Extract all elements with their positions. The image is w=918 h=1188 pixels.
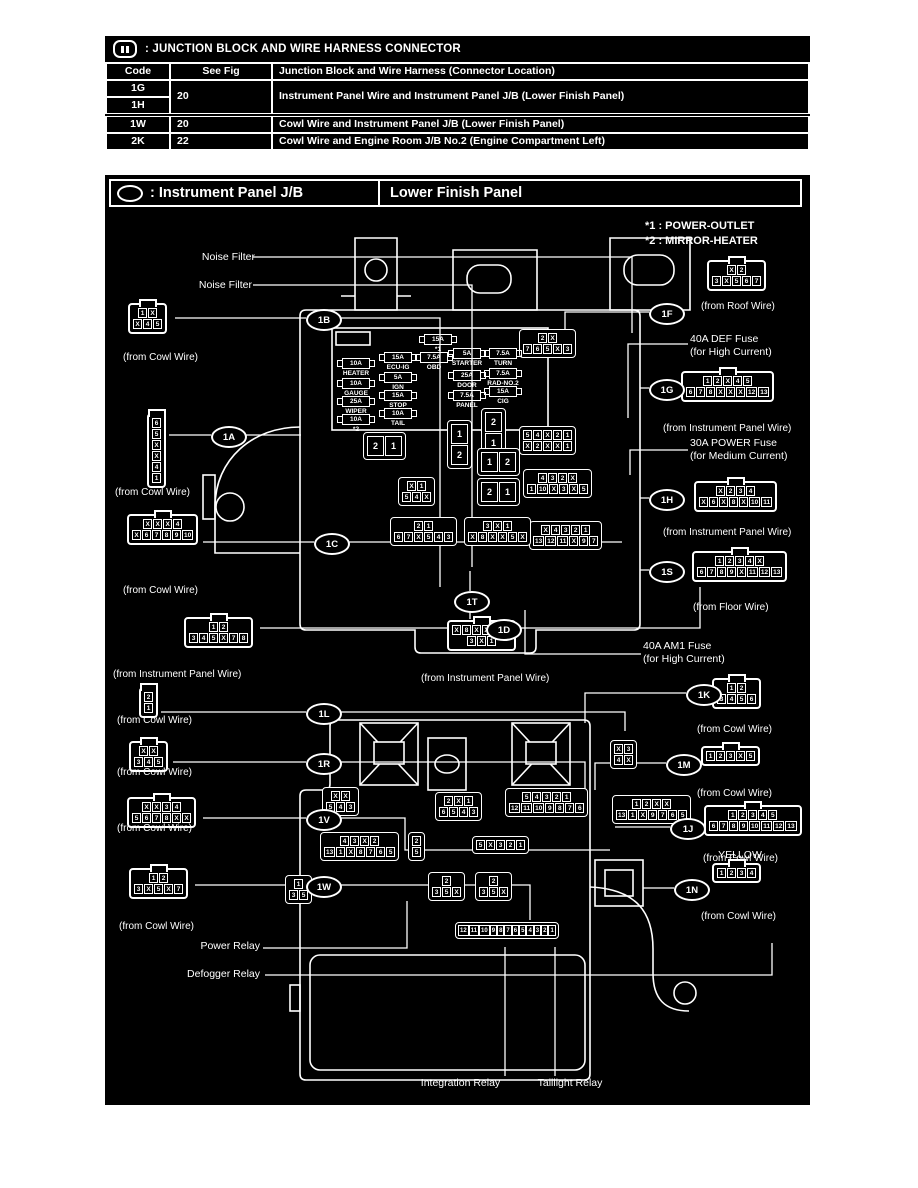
- pin: X: [736, 751, 745, 761]
- pin: 4: [538, 473, 547, 483]
- callout-1F: 1F: [649, 303, 685, 325]
- pin: 2: [738, 810, 747, 820]
- pin-row: 2: [412, 836, 421, 846]
- connector-tab: [473, 616, 491, 624]
- pin: 6: [709, 821, 718, 831]
- pin: 3: [726, 751, 735, 761]
- pin-row: 21: [481, 482, 516, 502]
- pin-row: 1X: [138, 308, 157, 318]
- pin-row: 21: [367, 436, 402, 456]
- label-defogger-relay: Defogger Relay: [150, 968, 260, 981]
- pin-row: 123X5: [706, 751, 755, 761]
- code-cell: 2K: [106, 133, 170, 150]
- pin: 1: [715, 556, 724, 566]
- pin: 11: [469, 925, 479, 936]
- pin: 1: [562, 792, 571, 802]
- pin-row: 2: [144, 692, 153, 702]
- from-label-1M: (from Cowl Wire): [697, 788, 772, 799]
- pin: 7: [229, 633, 238, 643]
- pin-row: 131X8765: [324, 847, 395, 857]
- connector-1M: 123X5: [701, 746, 760, 766]
- pin-row: 54X: [402, 492, 431, 502]
- pin: 7: [707, 567, 716, 577]
- pin: 11: [761, 821, 772, 831]
- fuse-turn: 7.5ATURN: [483, 348, 523, 367]
- pin: 8: [462, 625, 471, 635]
- connector-tab: [154, 510, 172, 518]
- fuse-amp: 10A: [342, 358, 370, 369]
- pin: 5: [442, 887, 451, 897]
- fig-cell: 20: [170, 80, 272, 115]
- pin: 8: [555, 803, 564, 813]
- pin: 1: [503, 521, 512, 531]
- pin: 4: [459, 807, 468, 817]
- pin: 5: [489, 887, 498, 897]
- pin: 5: [746, 751, 755, 761]
- instrument-panel-jb-icon: [117, 185, 143, 202]
- pin: X: [614, 744, 623, 754]
- code-cell: 1G: [106, 80, 170, 97]
- pin: 1: [209, 622, 218, 632]
- connector-b2: 235X: [428, 872, 465, 901]
- pin: X: [144, 884, 153, 894]
- pin: X: [541, 525, 550, 535]
- from-label-1N: (from Cowl Wire): [701, 911, 776, 922]
- fuse-gauge: 10AGAUGE: [336, 378, 376, 397]
- pin: 4: [199, 633, 208, 643]
- pin: X: [143, 519, 152, 529]
- callout-1B: 1B: [306, 309, 342, 331]
- pin: 1: [138, 308, 147, 318]
- connector-b3: 235X: [475, 872, 512, 901]
- pin: 7: [504, 925, 511, 936]
- pin: 2: [219, 622, 228, 632]
- callout-1W: 1W: [306, 876, 342, 898]
- pin: 5: [132, 813, 141, 823]
- pin: X: [737, 567, 746, 577]
- pin: 1: [548, 925, 555, 936]
- pin: X: [739, 497, 748, 507]
- pin: 2: [442, 876, 451, 886]
- pin: 6: [575, 803, 584, 813]
- callout-1C: 1C: [314, 533, 350, 555]
- pin: 2: [444, 796, 453, 806]
- fuse-ign: 5AIGN: [378, 372, 418, 391]
- pin: 1: [481, 452, 498, 472]
- pin: X: [716, 486, 725, 496]
- pin: 7: [658, 810, 667, 820]
- wiring-diagram: : Instrument Panel J/B Lower Finish Pane…: [105, 175, 810, 1105]
- fuse-amp: 15A: [384, 390, 412, 401]
- pin: 4: [152, 462, 161, 472]
- pin: X: [132, 530, 141, 540]
- pin: 4: [614, 755, 623, 765]
- from-label-1T: (from Instrument Panel Wire): [421, 673, 549, 684]
- pin: 2: [370, 836, 379, 846]
- diagram-title-bar: : Instrument Panel J/B Lower Finish Pane…: [109, 179, 802, 207]
- pin: X: [549, 484, 558, 494]
- pin-row: X4321: [541, 525, 590, 535]
- fuse-amp: 7.5A: [489, 348, 517, 359]
- connector-tab: [150, 864, 168, 872]
- connector-l4: 543211211109876: [505, 788, 588, 817]
- connector-1F: X23X567: [707, 260, 766, 291]
- label-nf2: Noise Filter: [190, 279, 252, 292]
- table-row: 2K 22 Cowl Wire and Engine Room J/B No.2…: [106, 133, 809, 150]
- pin-row: 5: [152, 429, 161, 439]
- pin: X: [148, 308, 157, 318]
- pin: 5: [154, 884, 163, 894]
- connector-tab: [744, 801, 762, 809]
- pin: X: [726, 387, 735, 397]
- pin: X: [407, 481, 416, 491]
- pin: 3: [289, 890, 298, 900]
- pin: 8: [162, 813, 171, 823]
- pin: 5: [386, 847, 395, 857]
- pin: X: [452, 625, 461, 635]
- code-cell: 1W: [106, 115, 170, 133]
- pin: 5: [543, 344, 552, 354]
- pin-row: 1: [294, 879, 303, 889]
- callout-1M: 1M: [666, 754, 702, 776]
- pin: 1: [527, 484, 536, 494]
- fuse-heater: 10AHEATER: [336, 358, 376, 377]
- pin: 7: [719, 821, 728, 831]
- pin: 6: [742, 276, 751, 286]
- connector-1B: 1XX45: [128, 303, 167, 334]
- from-label-1L: (from Cowl Wire): [117, 715, 192, 726]
- pin: 5: [209, 633, 218, 643]
- label-line: YELLOW: [705, 849, 775, 862]
- label-line: Noise Filter: [190, 279, 252, 292]
- pin: 5: [152, 429, 161, 439]
- pin: 6: [152, 418, 161, 428]
- pin: 1: [703, 376, 712, 386]
- connector-tab: [728, 256, 746, 264]
- label-am1: 40A AM1 Fuse(for High Current): [643, 640, 773, 666]
- label-nf1: Noise Filter: [193, 251, 255, 264]
- fuse-name: CIG: [483, 398, 523, 405]
- pin: X: [569, 536, 578, 546]
- fuse-panel: 7.5APANEL: [447, 390, 487, 409]
- pin: 5: [402, 492, 411, 502]
- pin: 5: [522, 792, 531, 802]
- callout-1R: 1R: [306, 753, 342, 775]
- pin: 1: [581, 525, 590, 535]
- legend-table-block: : JUNCTION BLOCK AND WIRE HARNESS CONNEC…: [105, 36, 810, 151]
- pin-row: 4: [152, 462, 161, 472]
- diagram-title-right-text: Lower Finish Panel: [390, 185, 522, 201]
- pin-row: 2X: [538, 333, 557, 343]
- pin: 4: [412, 492, 421, 502]
- pin: 3: [346, 802, 355, 812]
- pin-row: 3X5X7: [134, 884, 183, 894]
- pin: 10: [749, 821, 760, 831]
- pin: X: [723, 376, 732, 386]
- pin-row: 432X: [538, 473, 577, 483]
- fuse-door: 25ADOOR: [447, 370, 487, 389]
- connector-tab: [727, 477, 745, 485]
- pin: 2: [541, 925, 548, 936]
- pin: 1: [149, 873, 158, 883]
- connector-u7: 3X1X8XX5X: [464, 517, 531, 546]
- fuse-amp: 7.5A: [489, 368, 517, 379]
- pin-row: 54321: [522, 792, 571, 802]
- label-taillight-relay: Taillight Relay: [515, 1077, 625, 1090]
- pin: X: [568, 473, 577, 483]
- label-line: Noise Filter: [193, 251, 255, 264]
- pin: 3: [542, 792, 551, 802]
- fuse-name: TAIL: [378, 420, 418, 427]
- fuse-tail: 10ATAIL: [378, 408, 418, 427]
- pin: X: [477, 636, 486, 646]
- pin: X: [182, 813, 191, 823]
- pin: 1: [499, 482, 516, 502]
- pin-row: 1234: [717, 868, 756, 878]
- pin: 13: [324, 847, 335, 857]
- pin-row: 2: [485, 412, 502, 432]
- pin: 4: [551, 525, 560, 535]
- pin: 1: [632, 799, 641, 809]
- pin: X: [422, 492, 431, 502]
- label-yellow: YELLOW: [705, 849, 775, 862]
- pin: X: [716, 387, 725, 397]
- label-line: 40A AM1 Fuse: [643, 640, 773, 653]
- pin-row: X2XX1: [523, 441, 572, 451]
- pin: 2: [571, 525, 580, 535]
- pin-row: 12: [209, 622, 228, 632]
- pin-row: XX: [331, 791, 350, 801]
- fuse-name: ECU-IG: [378, 364, 418, 371]
- pin: 6: [376, 847, 385, 857]
- pin: 4: [172, 802, 181, 812]
- diagram-title-left: : Instrument Panel J/B: [111, 181, 380, 205]
- connector-r5: 21: [477, 478, 520, 506]
- legend-title: : JUNCTION BLOCK AND WIRE HARNESS CONNEC…: [145, 43, 461, 55]
- pin: 4: [532, 792, 541, 802]
- col-header-code: Code: [106, 63, 170, 80]
- pin: 1: [144, 703, 153, 713]
- pin: 4: [526, 925, 533, 936]
- pin: X: [152, 440, 161, 450]
- connector-tab: [139, 299, 157, 307]
- pin: X: [499, 887, 508, 897]
- pin: 3: [479, 887, 488, 897]
- connector-1J: 12345678910111213: [704, 805, 802, 836]
- pin: X: [139, 746, 148, 756]
- connector-r4: 12: [477, 448, 520, 476]
- connector-1N: 1234: [712, 863, 761, 883]
- pin: X: [498, 532, 507, 542]
- pin: 4: [727, 694, 736, 704]
- pin: 5: [737, 694, 746, 704]
- pin-row: 5X321: [476, 840, 525, 850]
- pin: 8: [717, 567, 726, 577]
- pin: X: [722, 276, 731, 286]
- pin-row: 6789X111213: [697, 567, 782, 577]
- callout-1T: 1T: [454, 591, 490, 613]
- pin: 3: [134, 757, 143, 767]
- pin: 8: [729, 821, 738, 831]
- pin: 2: [144, 692, 153, 702]
- fig-cell: 22: [170, 133, 272, 150]
- pin: X: [149, 746, 158, 756]
- pin: 7: [523, 344, 532, 354]
- fuse-amp: 15A: [384, 352, 412, 363]
- connector-r1: 21: [363, 432, 406, 460]
- pin-row: 345X78: [189, 633, 248, 643]
- pin: 5: [519, 925, 526, 936]
- pin-row: 2X1: [444, 796, 473, 806]
- pin: 2: [499, 452, 516, 472]
- connector-l3: 2X16543: [435, 792, 482, 821]
- pin: 7: [366, 847, 375, 857]
- fuse-name: *2: [336, 426, 376, 433]
- fuse-name: HEATER: [336, 370, 376, 377]
- pin-row: 12345: [728, 810, 777, 820]
- pin: 5: [523, 430, 532, 440]
- pin: 12: [759, 567, 770, 577]
- from-label-1W: (from Cowl Wire): [119, 921, 194, 932]
- pin: 7: [589, 536, 598, 546]
- pin: X: [486, 840, 495, 850]
- connector-u1: 2X765X3: [519, 329, 576, 358]
- pin: 1: [727, 683, 736, 693]
- pin: 1: [563, 430, 572, 440]
- pin: 13: [771, 567, 782, 577]
- pin-row: 2: [451, 445, 468, 465]
- from-label-1R: (from Cowl Wire): [117, 767, 192, 778]
- pin: 3: [561, 525, 570, 535]
- label-def: 40A DEF Fuse(for High Current): [690, 333, 820, 359]
- pin: 6: [142, 813, 151, 823]
- pin: 13: [616, 810, 627, 820]
- pin: 3: [496, 840, 505, 850]
- connector-1G: 12X45678XXX1213: [681, 371, 774, 402]
- fuse-amp: 25A: [342, 396, 370, 407]
- pin: 1: [424, 521, 433, 531]
- pin-row: X1: [407, 481, 426, 491]
- pin: 2: [642, 799, 651, 809]
- pin: 6: [142, 530, 151, 540]
- pin: 10: [537, 484, 548, 494]
- connector-u2: 54X21X2XX1: [519, 426, 576, 455]
- fuse-name: TURN: [483, 360, 523, 367]
- connector-l6: 5X321: [472, 836, 529, 854]
- pin: 5: [412, 847, 421, 857]
- pin: X: [163, 519, 172, 529]
- pin: 6: [512, 925, 519, 936]
- pin-row: 3X567: [712, 276, 761, 286]
- connector-tab: [731, 547, 749, 555]
- fuse-starter: 5ASTARTER: [447, 348, 487, 367]
- from-label-1F: (from Roof Wire): [701, 301, 775, 312]
- pin: 1: [385, 436, 402, 456]
- label-line: Integration Relay: [403, 1077, 518, 1090]
- fuse-radno2: 7.5ARAD-NO.2: [483, 368, 523, 387]
- page: : JUNCTION BLOCK AND WIRE HARNESS CONNEC…: [0, 0, 918, 1188]
- pin: 1: [628, 810, 637, 820]
- label-line: 30A POWER Fuse: [690, 437, 830, 450]
- table-header-row: Code See Fig Junction Block and Wire Har…: [106, 63, 809, 80]
- pin: X: [414, 532, 423, 542]
- label-line: Defogger Relay: [150, 968, 260, 981]
- connector-u6: 2167X543: [390, 517, 457, 546]
- pin: 4: [758, 810, 767, 820]
- pin: 6: [668, 810, 677, 820]
- pin-row: 3X1: [483, 521, 512, 531]
- pin: 8: [239, 633, 248, 643]
- fuse-name: PANEL: [447, 402, 487, 409]
- fuse-ecuig: 15AECU-IG: [378, 352, 418, 371]
- pin: 6: [686, 387, 695, 397]
- pin: 4: [533, 430, 542, 440]
- pin: 1: [417, 481, 426, 491]
- fuse-amp: 7.5A: [420, 352, 448, 363]
- pin: 4: [143, 319, 152, 329]
- connector-1W: 123X5X7: [129, 868, 188, 899]
- pin-row: 121110987654321: [458, 925, 556, 936]
- connector-u5: X154X: [398, 477, 435, 506]
- pin: X: [360, 836, 369, 846]
- fuse-stop: 15ASTOP: [378, 390, 418, 409]
- pin: 13: [533, 536, 544, 546]
- connector-1D: 12345X78: [184, 617, 253, 648]
- pin: 6: [709, 497, 718, 507]
- pin: X: [341, 791, 350, 801]
- pin: X: [152, 802, 161, 812]
- pin: 1: [294, 879, 303, 889]
- junction-block-icon: [113, 40, 137, 58]
- label-line: Taillight Relay: [515, 1077, 625, 1090]
- pin: X: [569, 484, 578, 494]
- pin: X: [133, 319, 142, 329]
- pin: 8: [497, 925, 504, 936]
- pin: 2: [737, 265, 746, 275]
- fuse-cig: 15ACIG: [483, 386, 523, 405]
- pin-row: X8XX5X: [468, 532, 527, 542]
- pin: X: [454, 796, 463, 806]
- pin: X: [543, 441, 552, 451]
- pin: 1: [706, 751, 715, 761]
- fuse-amp: 25A: [453, 370, 481, 381]
- fuse-wiper: 25AWIPER: [336, 396, 376, 415]
- pin: X: [153, 519, 162, 529]
- callout-1J: 1J: [670, 818, 706, 840]
- pin: 3: [624, 744, 633, 754]
- pin: 8: [162, 530, 171, 540]
- footnote-2: *2 : MIRROR-HEATER: [645, 234, 758, 249]
- pin: 13: [758, 387, 769, 397]
- pin: 3: [467, 636, 476, 646]
- pin: 9: [739, 821, 748, 831]
- from-label-1A: (from Cowl Wire): [115, 487, 190, 498]
- pin-row: 4X: [614, 755, 633, 765]
- pin: 9: [545, 803, 554, 813]
- pin-row: 3456: [717, 694, 756, 704]
- pin: 4: [733, 376, 742, 386]
- pin-row: X3: [614, 744, 633, 754]
- pin: 6: [747, 694, 756, 704]
- pin: X: [719, 497, 728, 507]
- from-label-1G: (from Instrument Panel Wire): [663, 423, 791, 434]
- pin: 1: [152, 473, 161, 483]
- col-header-seefig: See Fig: [170, 63, 272, 80]
- pin: 2: [451, 445, 468, 465]
- pin-row: 5678XX: [132, 813, 191, 823]
- pin: 4: [747, 868, 756, 878]
- pin: 5: [732, 276, 741, 286]
